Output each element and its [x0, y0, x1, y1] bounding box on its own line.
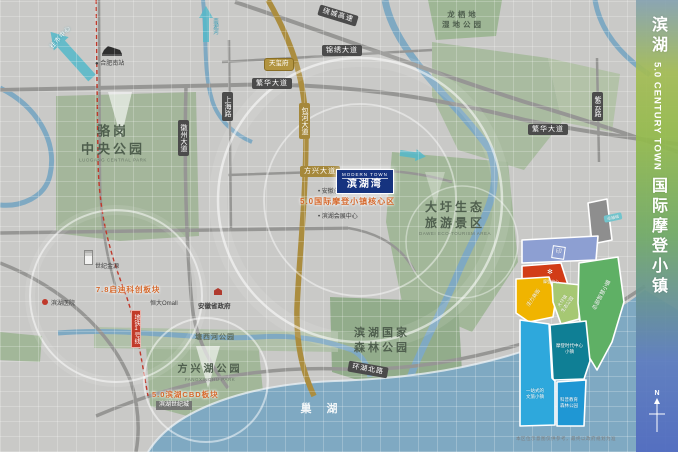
inset-azure-line2: 文旅小镇 — [526, 394, 544, 399]
brand-sidebar: 滨湖 5.0 CENTURY TOWN 国际摩登小镇 N — [636, 0, 678, 452]
compass-n-label: N — [654, 390, 659, 397]
inset-zone-azure-label: 一站式的 文旅小镇 — [526, 388, 544, 400]
compass-north-icon: N — [648, 390, 666, 432]
sidebar-title-century-town: 5.0 CENTURY TOWN — [652, 62, 663, 171]
inset-azure-line1: 一站式的 — [526, 388, 544, 393]
inset-zone-teal-label: 摩登时代中心 小镇 — [556, 343, 583, 355]
inset-zone-blue-label: 科普教育 森林公园 — [560, 397, 578, 409]
location-map-poster: 卓越城 印 ✻ 摩登中心 活力商街 大圩镇 生态公园 总部智慧小镇 摩登时代中心… — [0, 0, 678, 452]
sidebar-title-binhu: 滨湖 — [645, 16, 669, 56]
zone-azure — [520, 320, 555, 426]
inset-blue-line1: 科普教育 — [560, 397, 578, 402]
seal-logo-icon: 印 — [551, 245, 566, 260]
star-icon: ✻ — [547, 268, 553, 277]
map-disclaimer: 本区位示意图仅供参考，最终以政府规划为准 — [516, 436, 616, 442]
inset-zone-red-label: 摩登中心 — [543, 279, 559, 284]
inset-teal-line1: 摩登时代中心 — [556, 343, 583, 348]
inset-blue-line2: 森林公园 — [560, 403, 578, 408]
inset-teal-line2: 小镇 — [565, 349, 574, 354]
sidebar-title-modern-town: 国际摩登小镇 — [645, 177, 669, 297]
masterplan-inset-diagram — [0, 0, 678, 452]
